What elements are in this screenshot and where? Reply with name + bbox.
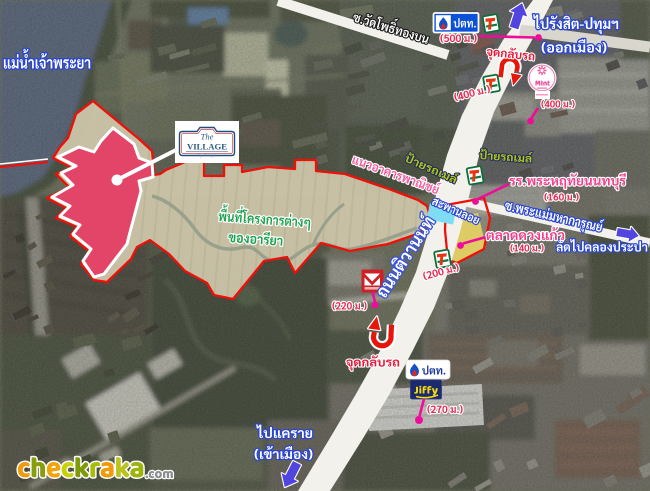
svg-text:by Areeya: by Areeya <box>198 153 217 158</box>
svg-text:VILLAGE: VILLAGE <box>187 142 227 152</box>
svg-text:The: The <box>201 132 214 142</box>
